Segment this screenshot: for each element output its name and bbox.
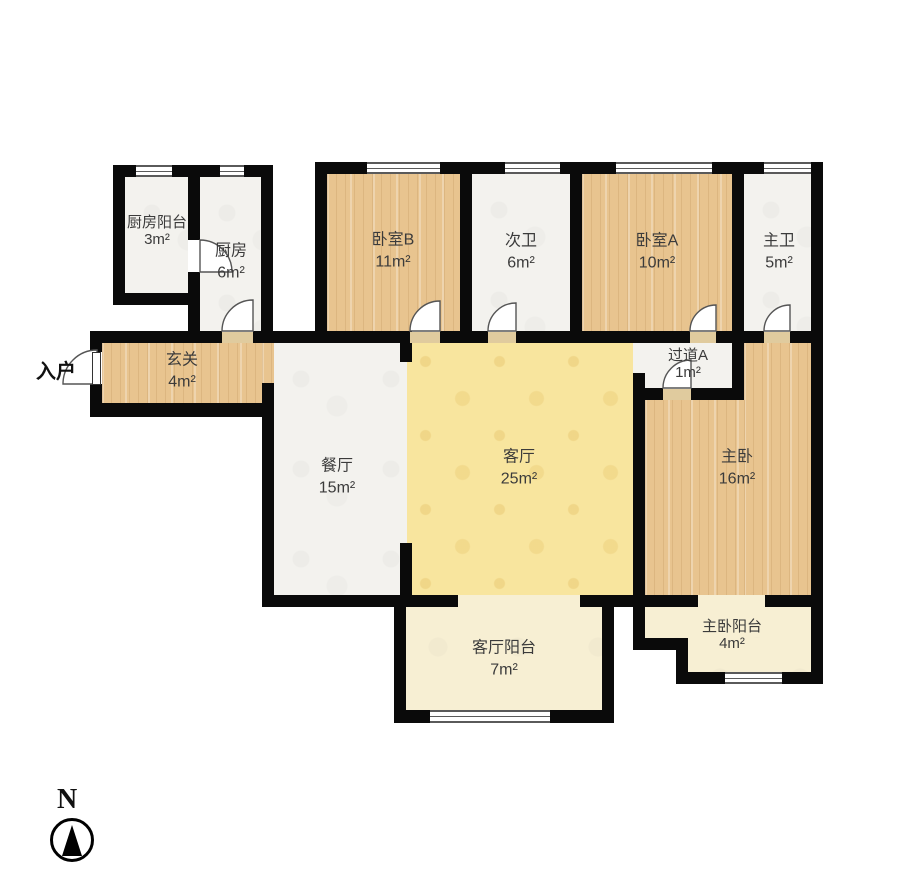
wall-segment (570, 174, 582, 343)
room-label-master-bathroom: 主卫5m² (763, 230, 795, 273)
entry-label: 入户 (36, 355, 76, 384)
wall-segment (811, 343, 823, 684)
room-label-living-balcony: 客厅阳台7m² (472, 637, 536, 680)
room-label-kitchen-balcony: 厨房阳台3m² (127, 214, 187, 249)
wall-segment (732, 174, 744, 343)
door-threshold (764, 332, 790, 343)
opening-living-to-balcony (458, 595, 580, 607)
room-floor-master-bedroom-left (645, 400, 745, 595)
wall-segment (261, 165, 273, 343)
wall-segment (460, 174, 472, 343)
room-label-master-bedroom: 主卧16m² (719, 446, 755, 489)
wall-segment (188, 177, 200, 240)
room-label-kitchen: 厨房6m² (215, 240, 247, 283)
room-label-bedroom-b: 卧室B11m² (372, 229, 415, 272)
door-arc-bedroom-a (690, 305, 716, 331)
door-threshold (222, 332, 253, 343)
wall-segment (440, 331, 488, 343)
window (725, 672, 782, 684)
window (430, 710, 550, 723)
window (616, 162, 712, 174)
door-threshold (488, 332, 516, 343)
wall-segment (691, 388, 744, 400)
door-arc-bedroom-b (410, 301, 440, 331)
door-arc-second-bathroom (488, 303, 516, 331)
room-label-second-bathroom: 次卫6m² (505, 230, 537, 273)
door-arc-master-bathroom (764, 305, 790, 331)
wall-segment (113, 165, 125, 305)
door-threshold (410, 332, 440, 343)
opening-living-to-hallway (633, 343, 645, 373)
door-arc-kitchen (222, 300, 253, 331)
room-label-dining: 餐厅15m² (319, 455, 355, 498)
wall-segment (811, 162, 823, 343)
wall-segment (90, 403, 274, 417)
wall-segment (90, 331, 222, 343)
wall-segment (262, 383, 274, 607)
room-label-hallway-a: 过道A1m² (668, 347, 708, 382)
wall-segment (262, 595, 458, 607)
wall-segment (716, 331, 764, 343)
wall-segment (580, 595, 633, 607)
wall-segment (790, 331, 823, 343)
wall-segment (602, 607, 614, 723)
window (764, 162, 811, 174)
compass-needle (62, 825, 82, 856)
wall-segment (633, 373, 645, 607)
window (220, 165, 244, 177)
compass-icon (50, 818, 94, 862)
door-threshold (690, 332, 716, 343)
compass-north-label: N (57, 784, 77, 816)
wall-segment (253, 331, 410, 343)
window (136, 165, 172, 177)
wall-segment (90, 331, 102, 352)
window (367, 162, 440, 174)
room-label-bedroom-a: 卧室A10m² (636, 230, 679, 273)
room-label-entry-hall: 玄关4m² (166, 349, 198, 392)
wall-segment (633, 388, 663, 400)
wall-segment (394, 595, 406, 723)
door-threshold (188, 240, 200, 272)
window (505, 162, 560, 174)
room-label-living: 客厅25m² (501, 446, 537, 489)
wall-segment (113, 293, 200, 305)
wall-segment (516, 331, 690, 343)
room-label-master-balcony: 主卧阳台4m² (702, 618, 762, 653)
opening-master-to-balcony (698, 595, 765, 607)
door-threshold (663, 389, 691, 400)
wall-segment (315, 162, 327, 343)
entry-door-leaf (92, 352, 101, 385)
floor-plan: 厨房阳台3m² 厨房6m² 卧室B11m² 次卫6m² 卧室A10m² 主卫5m… (0, 0, 915, 880)
opening-entry-to-dining (262, 343, 274, 383)
